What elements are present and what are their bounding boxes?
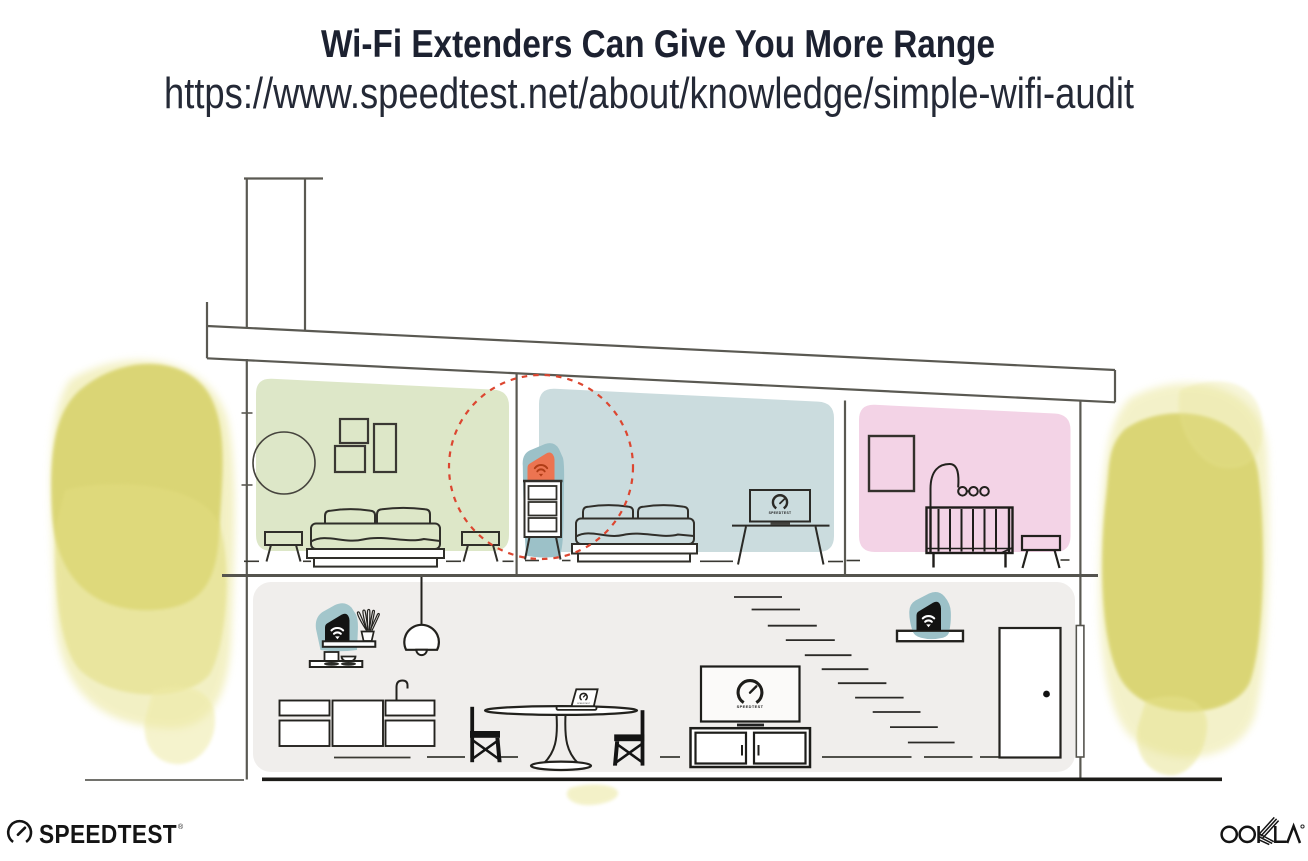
svg-text:SPEEDTEST: SPEEDTEST bbox=[737, 704, 764, 709]
svg-text:®: ® bbox=[178, 823, 184, 831]
svg-text:SPEEDTEST: SPEEDTEST bbox=[577, 703, 591, 705]
svg-text:https://www.speedtest.net/abou: https://www.speedtest.net/about/knowledg… bbox=[164, 69, 1134, 118]
svg-text:SPEEDTEST: SPEEDTEST bbox=[769, 511, 792, 515]
svg-text:Wi-Fi Extenders Can Give You M: Wi-Fi Extenders Can Give You More Range bbox=[321, 23, 995, 66]
svg-text:SPEEDTEST: SPEEDTEST bbox=[39, 821, 177, 849]
